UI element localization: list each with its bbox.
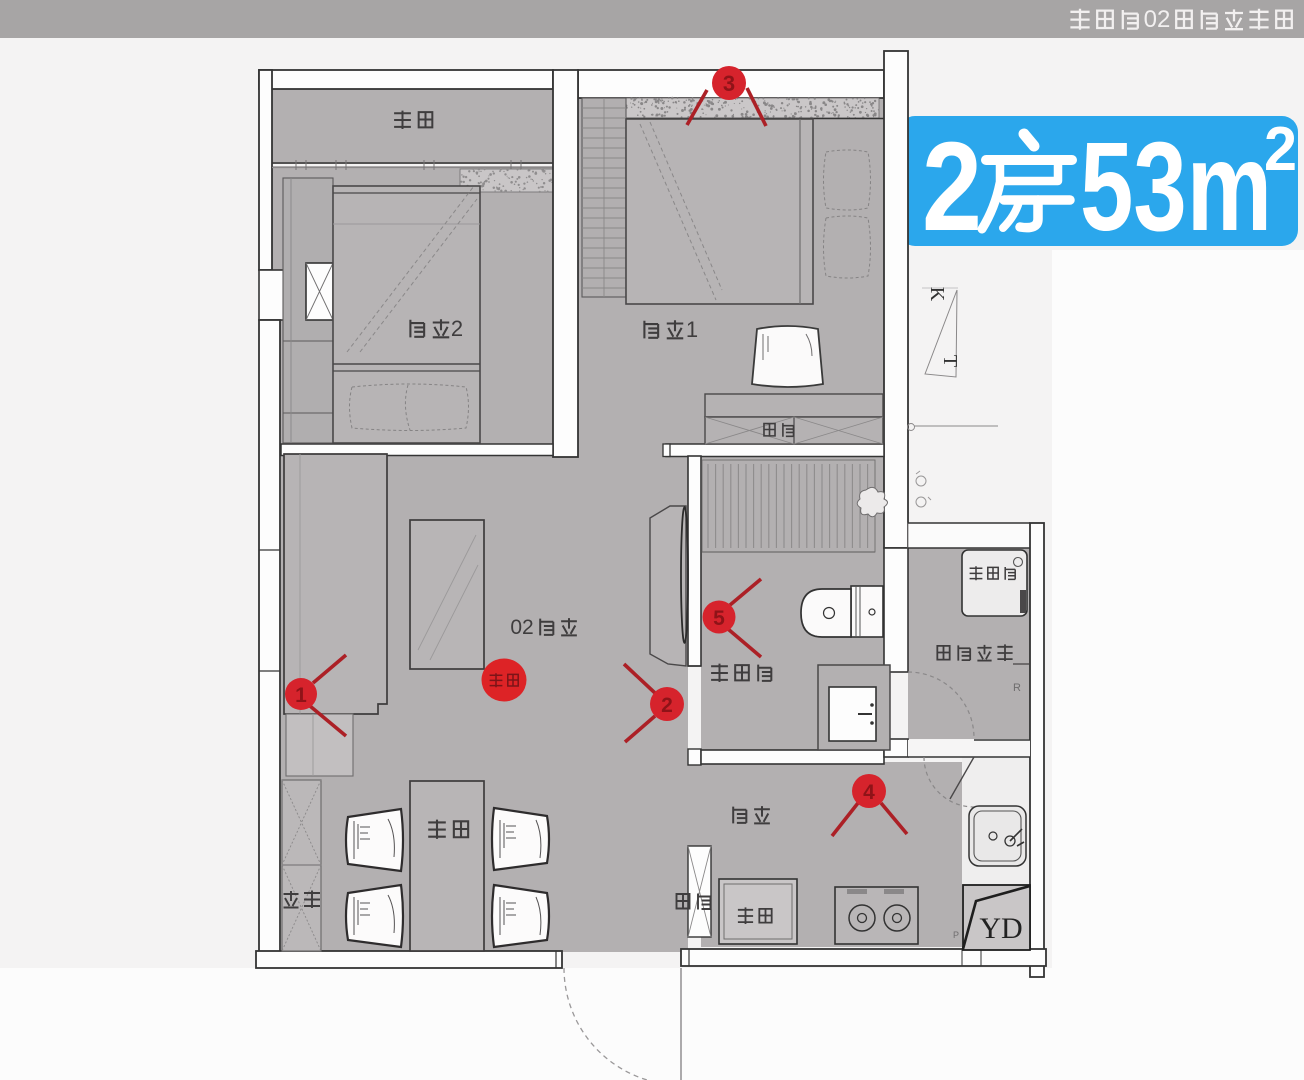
svg-text:53m: 53m	[1080, 116, 1272, 257]
svg-text:02: 02	[1144, 6, 1171, 33]
svg-text:2: 2	[1264, 115, 1297, 184]
svg-text:2: 2	[922, 116, 982, 257]
svg-text:3: 3	[723, 71, 735, 96]
svg-text:4: 4	[863, 781, 875, 804]
svg-text:P: P	[953, 930, 959, 940]
svg-text:K: K	[926, 287, 948, 302]
svg-text:1: 1	[686, 317, 698, 342]
svg-text:2: 2	[661, 694, 673, 717]
svg-text:T: T	[939, 355, 961, 367]
svg-text:YD: YD	[979, 912, 1022, 945]
svg-text:02: 02	[510, 616, 533, 639]
svg-text:1: 1	[295, 684, 307, 707]
svg-text:5: 5	[713, 607, 725, 630]
svg-text:R: R	[1013, 682, 1021, 694]
svg-text:2: 2	[451, 316, 463, 341]
